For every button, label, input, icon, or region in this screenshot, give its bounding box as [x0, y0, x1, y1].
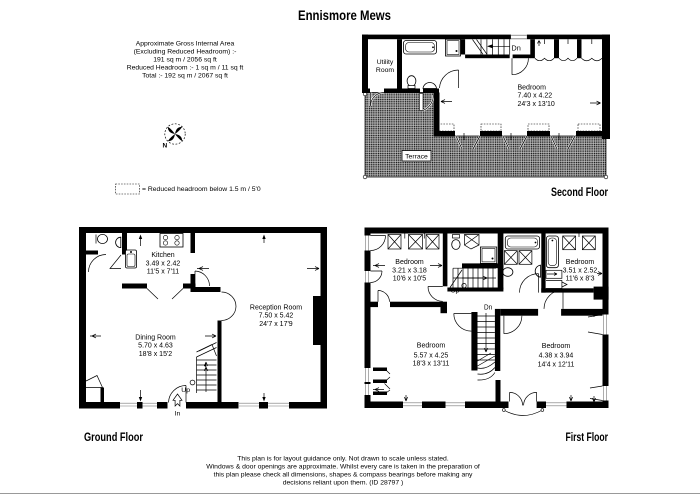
svg-text:Bedroom: Bedroom: [542, 343, 571, 350]
svg-text:11'5 x 7'11: 11'5 x 7'11: [147, 269, 179, 276]
svg-text:5.70 x 4.63: 5.70 x 4.63: [138, 343, 173, 350]
svg-text:Dining Room: Dining Room: [135, 335, 176, 342]
svg-text:Bedroom: Bedroom: [518, 85, 547, 92]
svg-text:Kitchen: Kitchen: [151, 252, 174, 259]
svg-text:Up: Up: [451, 288, 460, 295]
svg-text:18'3 x 13'11: 18'3 x 13'11: [413, 361, 450, 368]
svg-text:First Floor: First Floor: [566, 430, 609, 444]
svg-text:5.57 x 4.25: 5.57 x 4.25: [414, 352, 449, 359]
svg-text:3.49 x 2.42: 3.49 x 2.42: [146, 260, 181, 267]
svg-text:10'6 x 10'5: 10'6 x 10'5: [393, 276, 427, 283]
svg-text:Ennismore Mews: Ennismore Mews: [298, 7, 391, 23]
svg-text:Bedroom: Bedroom: [417, 343, 446, 350]
svg-text:191 sq m / 2056 sq ft: 191 sq m / 2056 sq ft: [153, 57, 217, 64]
svg-text:24'7 x 17'9: 24'7 x 17'9: [259, 321, 293, 328]
svg-text:24'3 x 13'10: 24'3 x 13'10: [518, 101, 555, 108]
svg-text:Dn: Dn: [484, 303, 492, 312]
svg-text:4.38 x 3.94: 4.38 x 3.94: [539, 352, 574, 359]
svg-text:Bedroom: Bedroom: [566, 259, 595, 266]
svg-text:7.40 x 4.22: 7.40 x 4.22: [518, 93, 553, 100]
svg-text:Approximate Gross Internal Are: Approximate Gross Internal Area: [136, 41, 235, 48]
svg-text:18'8 x 15'2: 18'8 x 15'2: [139, 351, 173, 358]
svg-text:Up: Up: [181, 387, 190, 394]
svg-text:N: N: [162, 143, 167, 150]
svg-text:Ground Floor: Ground Floor: [84, 430, 143, 444]
svg-text:Total :- 192 sq m / 2067 sq ft: Total :- 192 sq m / 2067 sq ft: [142, 73, 228, 80]
svg-text:14'4 x 12'11: 14'4 x 12'11: [538, 362, 575, 369]
svg-text:Utility: Utility: [377, 59, 394, 66]
svg-text:This plan is for layout guidan: This plan is for layout guidance only. N…: [237, 456, 449, 463]
svg-text:3.51 x 2.52: 3.51 x 2.52: [563, 267, 598, 274]
svg-text:= Reduced headroom below 1.5: = Reduced headroom below 1.5 m / 5'0: [142, 186, 261, 193]
svg-text:3.21 x 3.18: 3.21 x 3.18: [392, 267, 427, 274]
svg-text:Terrace: Terrace: [405, 154, 428, 161]
svg-text:11'6 x 8'3: 11'6 x 8'3: [565, 276, 594, 283]
svg-text:(Excluding Reduced Headroom) :: (Excluding Reduced Headroom) :-: [134, 49, 237, 56]
svg-text:Bedroom: Bedroom: [395, 259, 424, 266]
svg-text:In: In: [175, 411, 181, 418]
svg-text:Reception Room: Reception Room: [250, 305, 302, 312]
svg-text:decisions reliant upon them. (: decisions reliant upon them. (ID 28797 ): [283, 480, 404, 487]
svg-text:Windows & door openings are ap: Windows & door openings are approximate.…: [206, 464, 480, 471]
svg-text:7.50 x 5.42: 7.50 x 5.42: [259, 313, 294, 320]
svg-text:Second Floor: Second Floor: [551, 185, 608, 199]
svg-text:Reduced Headroom :- 1 sq m / 1: Reduced Headroom :- 1 sq m / 11 sq ft: [127, 65, 244, 72]
svg-text:Dn: Dn: [511, 43, 520, 52]
svg-text:Room: Room: [376, 67, 394, 74]
svg-text:this plan please check all dim: this plan please check all dimensions, s…: [214, 472, 473, 479]
